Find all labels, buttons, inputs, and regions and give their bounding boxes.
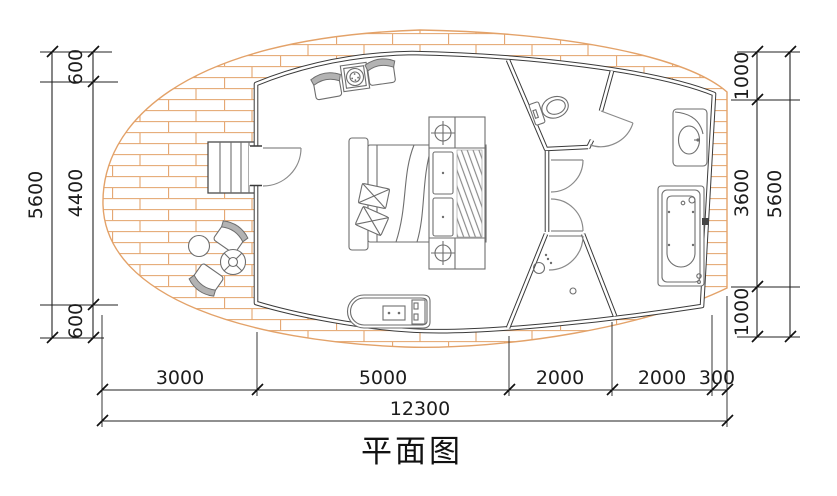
dim-label: 1000 [731,52,753,100]
bathtub [658,186,709,286]
dim-label: 300 [699,367,735,389]
planter [189,236,210,257]
dim-label: 600 [65,49,87,85]
floor-plan-drawing: 5600 600 4400 600 1000 3600 1000 5600 30… [0,0,837,496]
floor-plan-canvas: 5600 600 4400 600 1000 3600 1000 5600 30… [0,0,837,496]
dim-label-bottom-overall: 12300 [390,398,450,420]
dim-label: 2000 [536,367,584,389]
dim-label: 5000 [359,367,407,389]
dim-label: 1000 [731,288,753,336]
dim-label: 3000 [156,367,204,389]
washbasin-vanity [673,109,707,166]
plan-title: 平面图 [361,434,463,470]
dim-label: 3600 [731,169,753,217]
entry-stairs [208,142,256,193]
dim-right: 1000 3600 1000 5600 [731,46,800,342]
dim-label: 4400 [65,169,87,217]
dim-label: 600 [65,303,87,339]
wardrobe [429,117,485,269]
round-table [221,250,246,275]
dim-label-left-overall: 5600 [25,171,47,219]
dim-label-right-overall: 5600 [764,170,786,218]
shower-control-icon [702,218,709,225]
dim-label: 2000 [638,367,686,389]
kitchenette-counter [348,295,431,328]
